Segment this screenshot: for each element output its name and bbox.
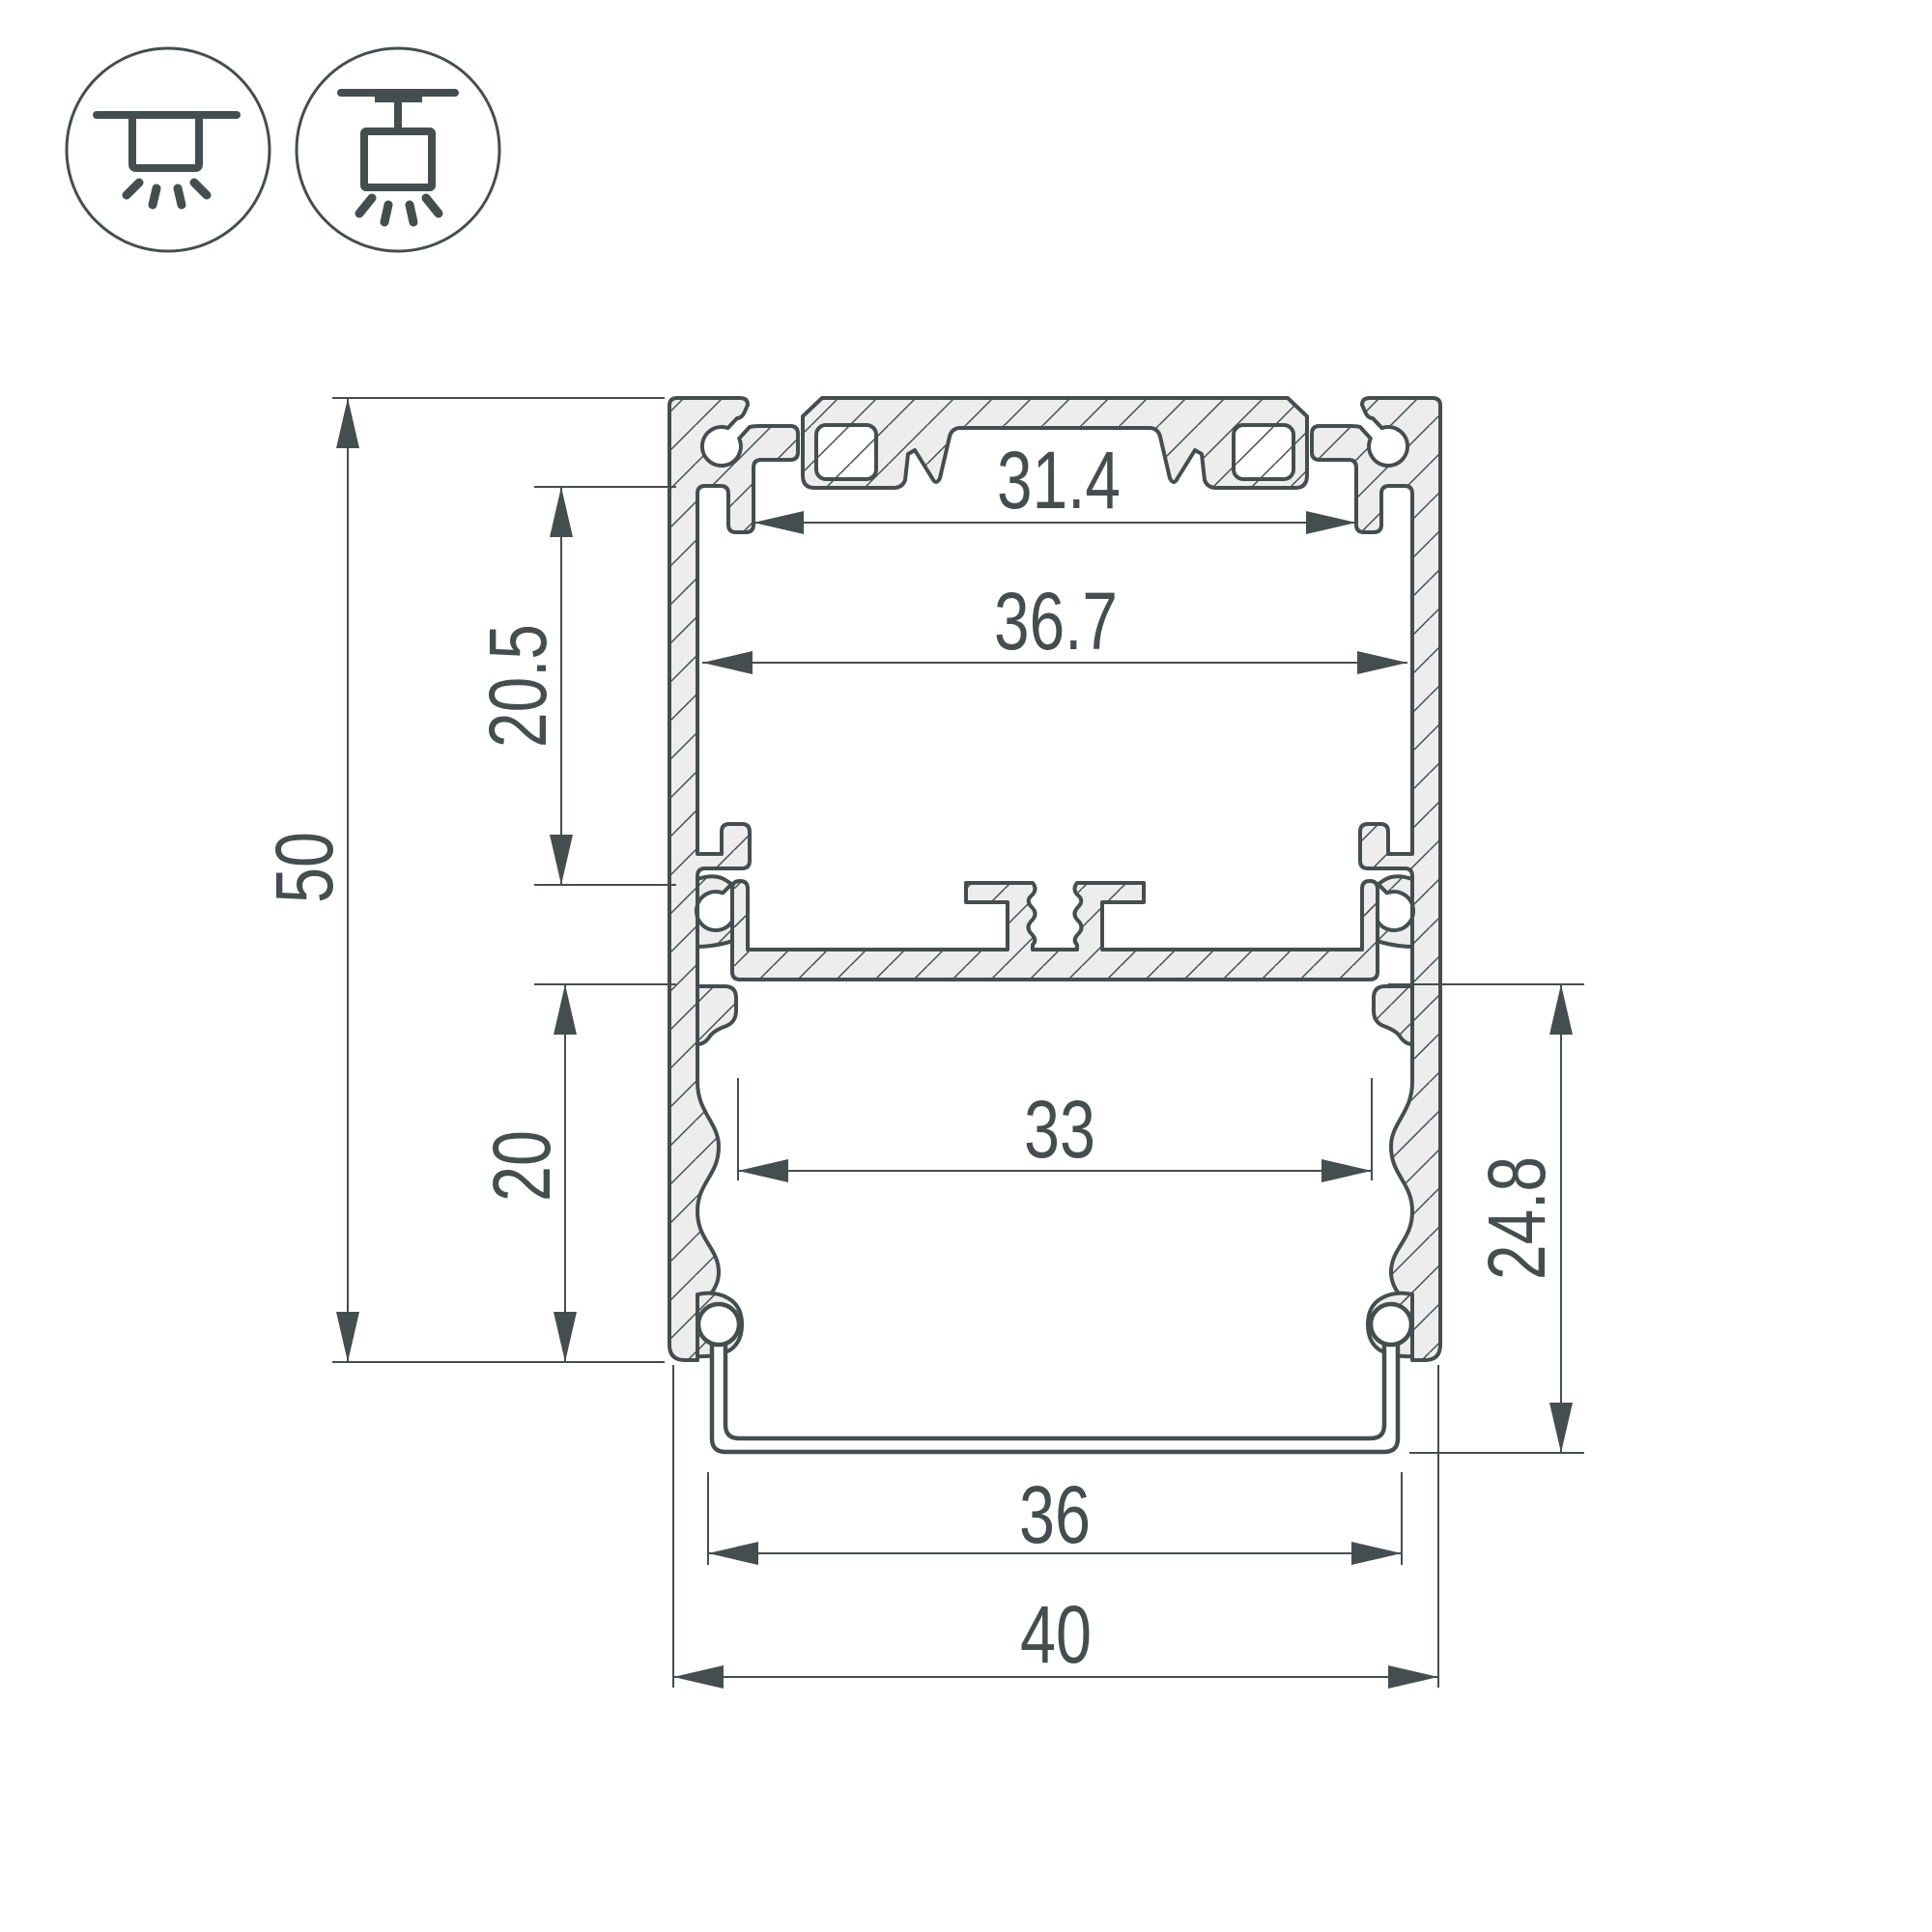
svg-text:20.5: 20.5 xyxy=(472,624,563,748)
svg-text:33: 33 xyxy=(1024,1084,1095,1175)
svg-text:50: 50 xyxy=(259,832,350,903)
svg-text:40: 40 xyxy=(1020,1589,1092,1680)
svg-text:24.8: 24.8 xyxy=(1471,1156,1562,1280)
svg-text:36: 36 xyxy=(1019,1469,1091,1560)
svg-text:36.7: 36.7 xyxy=(994,576,1118,667)
svg-text:31.4: 31.4 xyxy=(997,435,1121,526)
svg-text:20: 20 xyxy=(476,1130,567,1202)
